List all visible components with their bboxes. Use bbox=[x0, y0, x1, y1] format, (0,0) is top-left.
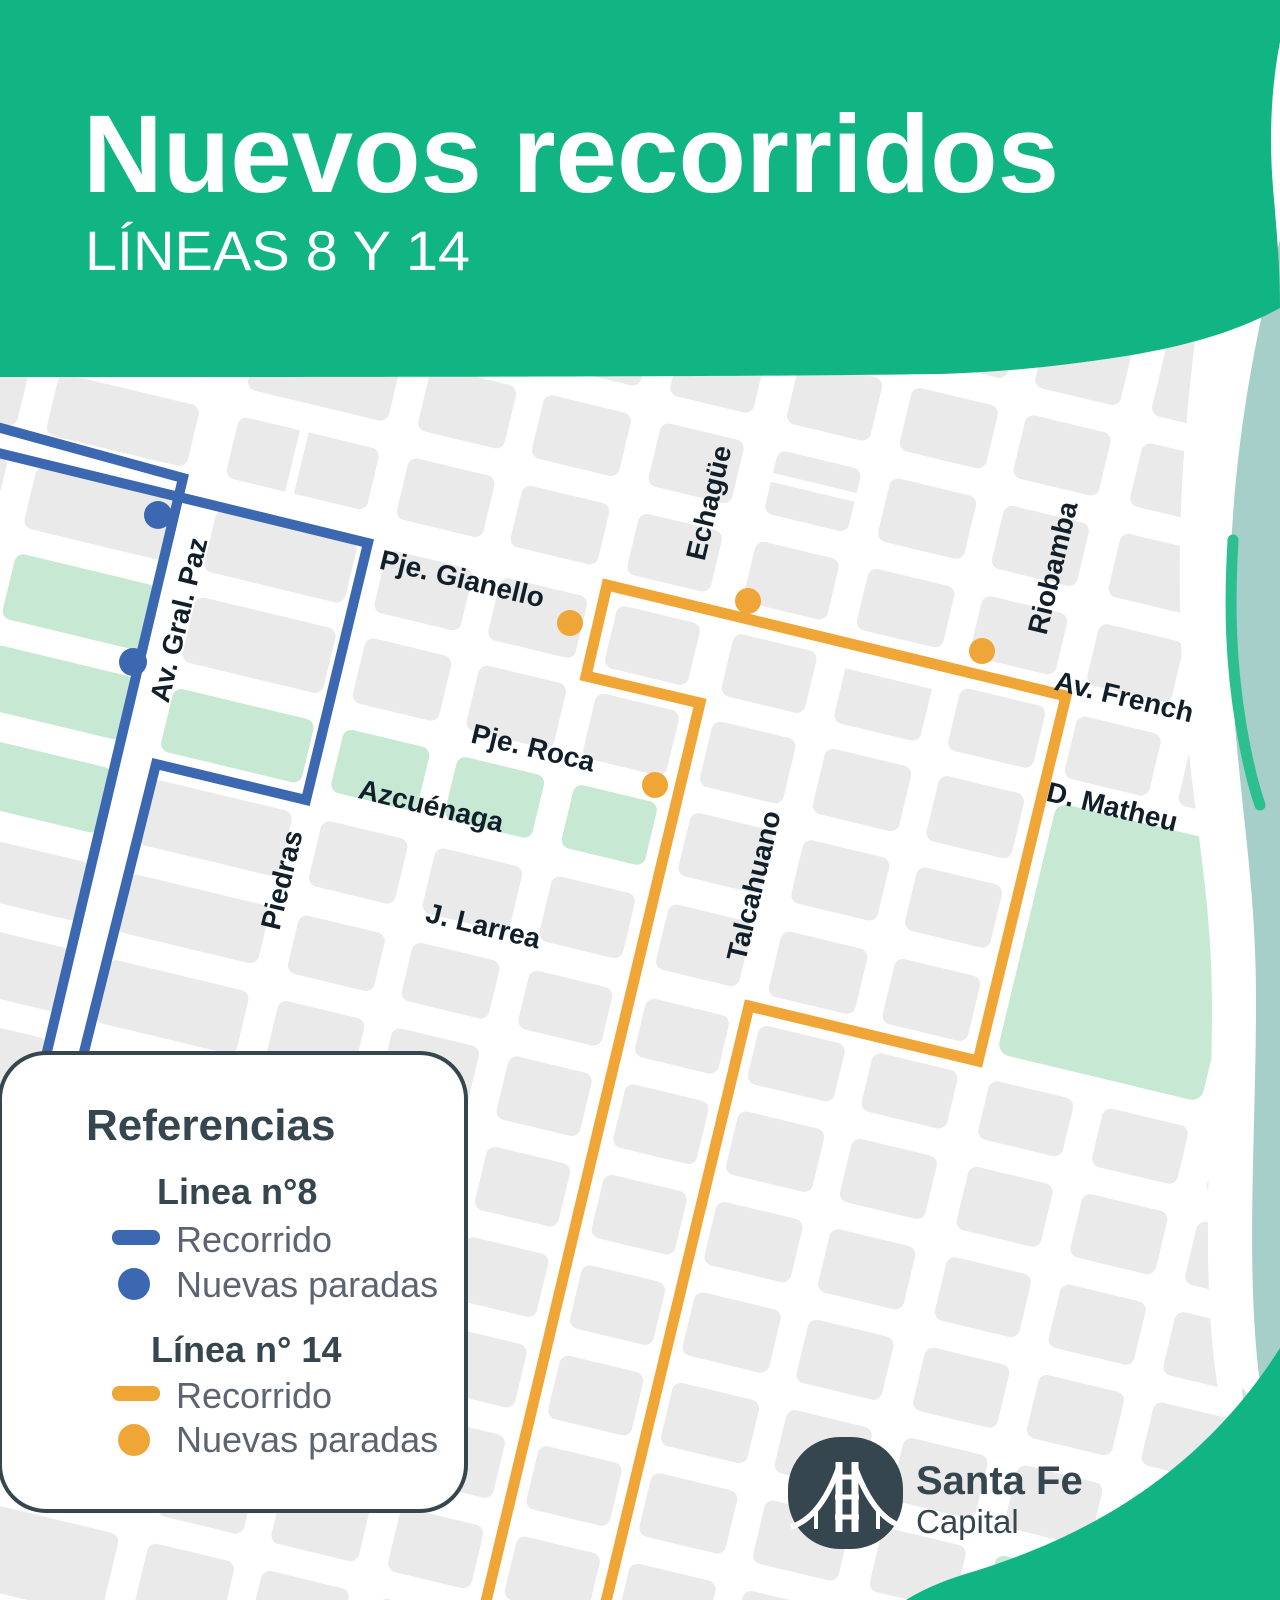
legend-title: Referencias bbox=[86, 1101, 335, 1150]
line8-stop-swatch bbox=[118, 1268, 150, 1300]
line14-route-swatch bbox=[112, 1386, 160, 1401]
line14-stop-riobamba bbox=[969, 638, 995, 664]
logo-subname: Capital bbox=[916, 1503, 1019, 1540]
line8-stop-gralpaz-north bbox=[144, 501, 172, 529]
legend-line8-name: Linea n°8 bbox=[157, 1171, 317, 1212]
map-canvas: Pje. GianelloEchagüeRiobambaAv. FrenchPj… bbox=[0, 0, 1280, 1600]
legend-line14-stops-label: Nuevas paradas bbox=[176, 1419, 438, 1460]
legend-line8-stops-label: Nuevas paradas bbox=[176, 1264, 438, 1305]
line8-stop-gralpaz-south bbox=[119, 648, 147, 676]
legend-line14-name: Línea n° 14 bbox=[151, 1329, 341, 1370]
line14-stop-roca bbox=[642, 772, 668, 798]
page-subtitle: LÍNEAS 8 Y 14 bbox=[85, 219, 470, 282]
legend-line8-route-label: Recorrido bbox=[176, 1219, 332, 1260]
bus-routes-poster: Pje. GianelloEchagüeRiobambaAv. FrenchPj… bbox=[0, 0, 1280, 1600]
line14-stop-gianello bbox=[557, 610, 583, 636]
line14-stop-echague bbox=[735, 588, 761, 614]
line14-stop-swatch bbox=[118, 1424, 150, 1456]
page-title: Nuevos recorridos bbox=[83, 93, 1059, 216]
logo-name: Santa Fe bbox=[916, 1459, 1083, 1503]
legend-line14-route-label: Recorrido bbox=[176, 1375, 332, 1416]
legend-panel: Referencias Linea n°8 Recorrido Nuevas p… bbox=[0, 1053, 466, 1511]
logo-badge bbox=[788, 1437, 903, 1549]
line8-route-swatch bbox=[112, 1230, 160, 1245]
